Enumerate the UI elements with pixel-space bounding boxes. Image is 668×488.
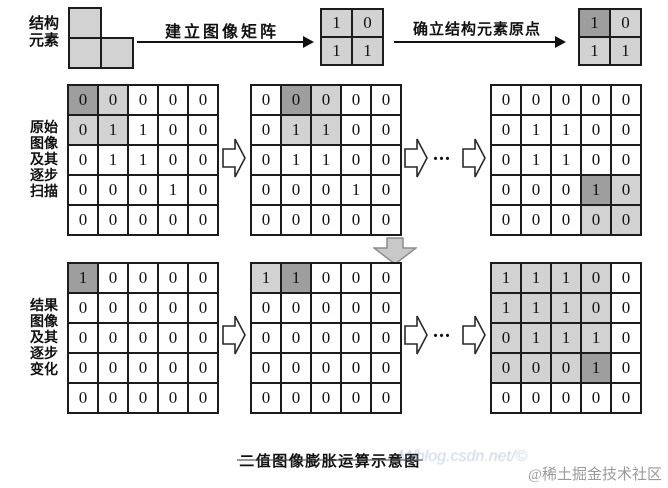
matrix-cell: 1 bbox=[321, 37, 352, 65]
matrix-table: 1110011100011100001000000 bbox=[490, 262, 642, 414]
matrix-cell: 0 bbox=[251, 205, 281, 235]
matrix-cell: 0 bbox=[68, 353, 98, 383]
matrix-cell: 0 bbox=[281, 323, 311, 353]
matrix-cell: 0 bbox=[341, 263, 371, 293]
matrix-cell: 0 bbox=[611, 175, 641, 205]
original-matrix-2: 0000001100011000001000000 bbox=[250, 84, 402, 236]
matrix-cell: 0 bbox=[491, 145, 521, 175]
matrix-cell: 0 bbox=[98, 263, 128, 293]
original-image-label: 原始图像及其逐步扫描 bbox=[26, 121, 62, 201]
matrix-cell: 0 bbox=[521, 85, 551, 115]
ellipsis-middle: ... bbox=[433, 143, 451, 166]
matrix-cell: 0 bbox=[371, 115, 401, 145]
matrix-cell: 0 bbox=[251, 353, 281, 383]
matrix-cell: 0 bbox=[188, 175, 218, 205]
matrix-cell: 0 bbox=[491, 323, 521, 353]
matrix-cell: 0 bbox=[491, 205, 521, 235]
matrix-cell: 0 bbox=[371, 145, 401, 175]
matrix-cell: 1 bbox=[281, 263, 311, 293]
matrix-cell: 0 bbox=[188, 115, 218, 145]
result-matrix-2: 1100000000000000000000000 bbox=[250, 262, 402, 414]
matrix-table: 1000000000000000000000000 bbox=[67, 262, 219, 414]
matrix-table: 0000001100011000001000000 bbox=[490, 84, 642, 236]
matrix-cell: 0 bbox=[521, 175, 551, 205]
matrix-cell: 0 bbox=[581, 293, 611, 323]
matrix-cell: 1 bbox=[551, 293, 581, 323]
matrix-cell: 1 bbox=[521, 293, 551, 323]
matrix-cell: 0 bbox=[98, 383, 128, 413]
matrix-cell: 0 bbox=[158, 293, 188, 323]
matrix-cell: 0 bbox=[128, 175, 158, 205]
matrix-cell: 1 bbox=[128, 145, 158, 175]
matrix-cell: 0 bbox=[158, 323, 188, 353]
matrix-cell: 0 bbox=[128, 263, 158, 293]
build-matrix-arrow-label: 建立图像矩阵 bbox=[140, 18, 304, 42]
matrix-cell: 0 bbox=[281, 205, 311, 235]
matrix-cell: 0 bbox=[311, 383, 341, 413]
matrix-cell: 0 bbox=[68, 383, 98, 413]
matrix-cell: 1 bbox=[579, 37, 610, 65]
matrix-cell: 0 bbox=[311, 175, 341, 205]
matrix-cell: 0 bbox=[551, 175, 581, 205]
matrix-cell: 0 bbox=[68, 205, 98, 235]
matrix-cell: 0 bbox=[371, 353, 401, 383]
matrix-cell: 1 bbox=[491, 263, 521, 293]
matrix-cell: 0 bbox=[158, 205, 188, 235]
matrix-table: 1100000000000000000000000 bbox=[250, 262, 402, 414]
matrix-cell: 1 bbox=[128, 115, 158, 145]
matrix-cell: 1 bbox=[491, 293, 521, 323]
label-line: 结果 bbox=[26, 299, 62, 315]
caption-strikethrough-line bbox=[237, 459, 423, 461]
matrix-cell: 0 bbox=[611, 353, 641, 383]
matrix-cell: 0 bbox=[158, 115, 188, 145]
matrix-cell: 0 bbox=[491, 85, 521, 115]
matrix-table: 1011 bbox=[578, 8, 642, 66]
label-line: 及其 bbox=[26, 331, 62, 347]
matrix-cell: 0 bbox=[188, 293, 218, 323]
matrix-cell: 1 bbox=[551, 323, 581, 353]
matrix-cell: 0 bbox=[581, 263, 611, 293]
matrix-cell: 0 bbox=[611, 85, 641, 115]
structure-element-shape bbox=[68, 7, 136, 69]
original-matrix-3: 0000001100011000001000000 bbox=[490, 84, 642, 236]
matrix-cell: 0 bbox=[341, 353, 371, 383]
label-line: 图像 bbox=[26, 137, 62, 153]
matrix-cell: 1 bbox=[581, 353, 611, 383]
matrix-cell: 0 bbox=[371, 323, 401, 353]
matrix-cell: 0 bbox=[158, 263, 188, 293]
watermark-community-text: @稀土掘金技术社区 bbox=[480, 463, 662, 484]
matrix-cell: 0 bbox=[68, 145, 98, 175]
matrix-cell: 0 bbox=[98, 293, 128, 323]
matrix-cell: 1 bbox=[251, 263, 281, 293]
matrix-cell: 0 bbox=[68, 323, 98, 353]
matrix-cell: 0 bbox=[68, 115, 98, 145]
diagram-canvas: 结构元素 建立图像矩阵 1011 确立结构元素原点 1011 原始图像及其逐步扫… bbox=[0, 0, 668, 488]
se-matrix: 1011 bbox=[320, 8, 384, 66]
se-origin-matrix: 1011 bbox=[578, 8, 642, 66]
matrix-cell: 0 bbox=[611, 383, 641, 413]
label-line: 逐步 bbox=[26, 169, 62, 185]
matrix-cell: 0 bbox=[158, 383, 188, 413]
matrix-cell: 0 bbox=[68, 293, 98, 323]
matrix-cell: 0 bbox=[68, 175, 98, 205]
matrix-cell: 0 bbox=[611, 205, 641, 235]
se-shape-cell bbox=[68, 37, 102, 69]
matrix-cell: 1 bbox=[551, 263, 581, 293]
matrix-cell: 1 bbox=[521, 323, 551, 353]
matrix-cell: 0 bbox=[581, 205, 611, 235]
matrix-cell: 0 bbox=[521, 353, 551, 383]
matrix-cell: 0 bbox=[251, 175, 281, 205]
label-line: 元素 bbox=[26, 33, 62, 50]
matrix-cell: 0 bbox=[281, 353, 311, 383]
matrix-cell: 0 bbox=[371, 175, 401, 205]
matrix-table: 1011 bbox=[320, 8, 384, 66]
matrix-cell: 0 bbox=[311, 263, 341, 293]
matrix-cell: 0 bbox=[188, 145, 218, 175]
original-matrix-1: 0000001100011000001000000 bbox=[67, 84, 219, 236]
hollow-arrow-icon bbox=[404, 315, 428, 355]
matrix-cell: 1 bbox=[311, 145, 341, 175]
set-origin-arrow-line bbox=[394, 41, 557, 43]
matrix-cell: 1 bbox=[98, 145, 128, 175]
matrix-cell: 1 bbox=[341, 175, 371, 205]
matrix-cell: 0 bbox=[341, 383, 371, 413]
label-line: 及其 bbox=[26, 153, 62, 169]
matrix-cell: 0 bbox=[371, 263, 401, 293]
structure-element-label: 结构元素 bbox=[26, 16, 62, 50]
set-origin-arrow-label: 确立结构元素原点 bbox=[392, 18, 562, 39]
matrix-cell: 0 bbox=[128, 85, 158, 115]
matrix-cell: 0 bbox=[128, 293, 158, 323]
se-shape-cell bbox=[100, 37, 134, 69]
matrix-cell: 1 bbox=[521, 115, 551, 145]
matrix-cell: 0 bbox=[281, 175, 311, 205]
matrix-cell: 0 bbox=[371, 383, 401, 413]
matrix-cell: 0 bbox=[341, 323, 371, 353]
matrix-cell: 0 bbox=[128, 323, 158, 353]
matrix-cell: 0 bbox=[311, 353, 341, 383]
matrix-cell: 0 bbox=[311, 293, 341, 323]
matrix-cell: 0 bbox=[341, 205, 371, 235]
matrix-cell: 0 bbox=[311, 205, 341, 235]
matrix-cell: 1 bbox=[521, 145, 551, 175]
label-line: 原始 bbox=[26, 121, 62, 137]
matrix-cell: 0 bbox=[98, 175, 128, 205]
matrix-cell: 0 bbox=[611, 115, 641, 145]
matrix-cell: 0 bbox=[341, 145, 371, 175]
matrix-cell: 0 bbox=[341, 115, 371, 145]
label-line: 图像 bbox=[26, 315, 62, 331]
matrix-cell: 0 bbox=[341, 85, 371, 115]
hollow-arrow-icon bbox=[462, 315, 486, 355]
matrix-cell: 0 bbox=[281, 383, 311, 413]
matrix-cell: 0 bbox=[581, 85, 611, 115]
matrix-cell: 0 bbox=[491, 115, 521, 145]
hollow-arrow-icon bbox=[222, 315, 246, 355]
matrix-cell: 1 bbox=[610, 37, 641, 65]
matrix-cell: 0 bbox=[188, 353, 218, 383]
matrix-cell: 0 bbox=[611, 293, 641, 323]
matrix-cell: 0 bbox=[68, 85, 98, 115]
matrix-cell: 0 bbox=[521, 205, 551, 235]
result-matrix-3: 1110011100011100001000000 bbox=[490, 262, 642, 414]
matrix-cell: 1 bbox=[311, 115, 341, 145]
matrix-cell: 0 bbox=[128, 383, 158, 413]
matrix-cell: 0 bbox=[551, 353, 581, 383]
matrix-cell: 0 bbox=[188, 323, 218, 353]
down-arrow-icon bbox=[373, 237, 417, 265]
matrix-cell: 0 bbox=[491, 383, 521, 413]
matrix-cell: 1 bbox=[579, 9, 610, 37]
matrix-cell: 1 bbox=[551, 145, 581, 175]
matrix-cell: 0 bbox=[371, 205, 401, 235]
matrix-cell: 0 bbox=[611, 145, 641, 175]
matrix-cell: 0 bbox=[581, 115, 611, 145]
matrix-cell: 1 bbox=[158, 175, 188, 205]
ellipsis-bottom: ... bbox=[433, 320, 451, 343]
result-image-label: 结果图像及其逐步变化 bbox=[26, 299, 62, 379]
matrix-cell: 0 bbox=[341, 293, 371, 323]
matrix-cell: 0 bbox=[251, 293, 281, 323]
matrix-cell: 0 bbox=[188, 205, 218, 235]
matrix-cell: 0 bbox=[188, 85, 218, 115]
matrix-cell: 1 bbox=[98, 115, 128, 145]
matrix-cell: 0 bbox=[98, 205, 128, 235]
matrix-cell: 0 bbox=[98, 353, 128, 383]
matrix-cell: 0 bbox=[158, 353, 188, 383]
matrix-cell: 0 bbox=[311, 323, 341, 353]
matrix-cell: 0 bbox=[251, 85, 281, 115]
label-line: 变化 bbox=[26, 363, 62, 379]
right-arrow-icon bbox=[303, 36, 314, 48]
label-line: 逐步 bbox=[26, 347, 62, 363]
matrix-cell: 1 bbox=[551, 115, 581, 145]
matrix-cell: 0 bbox=[251, 145, 281, 175]
matrix-cell: 0 bbox=[581, 145, 611, 175]
matrix-table: 0000001100011000001000000 bbox=[67, 84, 219, 236]
matrix-cell: 0 bbox=[581, 383, 611, 413]
matrix-table: 0000001100011000001000000 bbox=[250, 84, 402, 236]
matrix-cell: 0 bbox=[551, 205, 581, 235]
hollow-arrow-icon bbox=[404, 138, 428, 178]
label-line: 扫描 bbox=[26, 185, 62, 201]
matrix-cell: 0 bbox=[251, 115, 281, 145]
matrix-cell: 0 bbox=[491, 353, 521, 383]
matrix-cell: 0 bbox=[611, 263, 641, 293]
matrix-cell: 0 bbox=[611, 323, 641, 353]
label-line: 结构 bbox=[26, 16, 62, 33]
result-matrix-1: 1000000000000000000000000 bbox=[67, 262, 219, 414]
matrix-cell: 0 bbox=[128, 353, 158, 383]
matrix-cell: 1 bbox=[321, 9, 352, 37]
matrix-cell: 0 bbox=[98, 323, 128, 353]
matrix-cell: 0 bbox=[158, 85, 188, 115]
matrix-cell: 0 bbox=[281, 85, 311, 115]
matrix-cell: 1 bbox=[281, 145, 311, 175]
matrix-cell: 0 bbox=[352, 9, 383, 37]
matrix-cell: 0 bbox=[610, 9, 641, 37]
matrix-cell: 1 bbox=[352, 37, 383, 65]
matrix-cell: 0 bbox=[551, 383, 581, 413]
matrix-cell: 0 bbox=[371, 293, 401, 323]
matrix-cell: 0 bbox=[521, 383, 551, 413]
matrix-cell: 1 bbox=[281, 115, 311, 145]
hollow-arrow-icon bbox=[462, 138, 486, 178]
matrix-cell: 0 bbox=[188, 263, 218, 293]
matrix-cell: 1 bbox=[581, 323, 611, 353]
matrix-cell: 0 bbox=[158, 145, 188, 175]
se-shape-cell bbox=[68, 7, 102, 39]
matrix-cell: 0 bbox=[371, 85, 401, 115]
matrix-cell: 1 bbox=[68, 263, 98, 293]
matrix-cell: 0 bbox=[551, 85, 581, 115]
matrix-cell: 0 bbox=[98, 85, 128, 115]
hollow-arrow-icon bbox=[222, 138, 246, 178]
matrix-cell: 0 bbox=[281, 293, 311, 323]
matrix-cell: 0 bbox=[188, 383, 218, 413]
matrix-cell: 0 bbox=[311, 85, 341, 115]
matrix-cell: 1 bbox=[581, 175, 611, 205]
matrix-cell: 1 bbox=[521, 263, 551, 293]
matrix-cell: 0 bbox=[251, 383, 281, 413]
matrix-cell: 0 bbox=[251, 323, 281, 353]
matrix-cell: 0 bbox=[128, 205, 158, 235]
matrix-cell: 0 bbox=[491, 175, 521, 205]
